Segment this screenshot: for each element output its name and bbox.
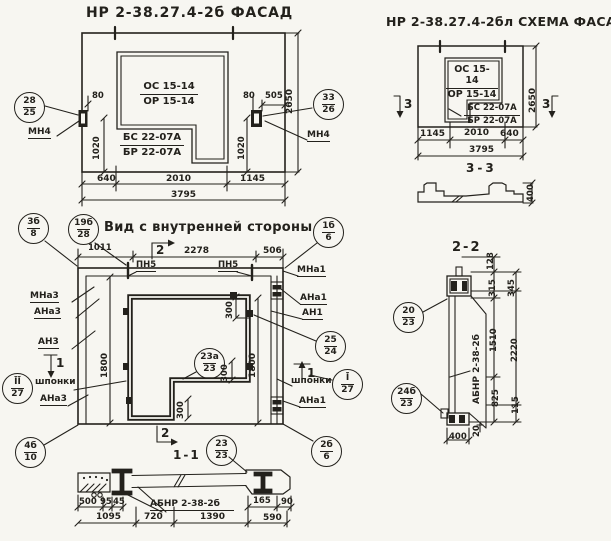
callout-4b-10: 4б 10 <box>15 437 46 468</box>
callout-33-26: 33 26 <box>313 89 344 120</box>
dim-315: 315 <box>489 279 498 297</box>
schema-opening-mark: ОС 15-14 ОР 15-14 <box>446 65 498 101</box>
callout-top-value: 19б <box>74 219 93 229</box>
callout-II-27: ĪĪ 27 <box>2 373 33 404</box>
section-marker-2-top: 2 <box>156 244 164 256</box>
label-an1: АН1 <box>302 309 323 320</box>
dim-3795-schema: 3795 <box>469 146 494 155</box>
inner-view-title: Вид с внутренней стороны <box>104 221 312 234</box>
dim-1800-right: 1800 <box>249 353 258 378</box>
dim-1800-left: 1800 <box>101 353 110 378</box>
dim-500: 500 <box>79 498 97 507</box>
callout-top-value: 20 <box>402 307 415 317</box>
callout-25-24: 25 24 <box>315 331 346 362</box>
callout-bottom-value: 26 <box>322 104 335 116</box>
callout-bottom-value: 27 <box>341 384 354 396</box>
dim-300-bottom: 300 <box>177 401 186 419</box>
callout-23-23: 23 23 <box>206 435 237 466</box>
dim-1510: 1510 <box>490 328 499 352</box>
dim-1020-left: 1020 <box>93 136 102 160</box>
drawing-sheet: НР 2-38.27.4-2б ФАСАД ОС 15-14 ОР 15-14 … <box>0 0 611 541</box>
dim-3795: 3795 <box>171 191 196 200</box>
section-2-2-title: 2-2 <box>452 241 482 254</box>
label-mna1: МНа1 <box>297 266 326 277</box>
anchor-label-mn4-right: МН4 <box>307 131 330 142</box>
dim-45: 45 <box>113 498 125 507</box>
callout-3b-8: 3б 8 <box>18 213 49 244</box>
callout-top-value: 25 <box>324 336 337 346</box>
section-2-2-linework <box>421 254 521 444</box>
dim-505: 505 <box>265 92 283 101</box>
callout-top-value: 23а <box>200 353 219 363</box>
label-an3: АН3 <box>38 338 59 349</box>
dim-1095: 1095 <box>96 513 121 522</box>
callout-bottom-value: 6 <box>322 232 335 244</box>
dim-1020-right: 1020 <box>238 136 247 160</box>
dim-115: 115 <box>512 396 521 414</box>
section-3-3-title: 3-3 <box>466 162 497 174</box>
dim-640-schema: 640 <box>500 130 519 139</box>
callout-top-value: 4б <box>24 442 37 452</box>
callout-bottom-value: 27 <box>11 388 24 400</box>
facade-opening-bottom-label: ОР 15-14 <box>135 95 203 108</box>
label-shponki-right: шпонки <box>291 377 332 386</box>
callout-28-25: 28 25 <box>14 92 45 123</box>
callout-2b-6: 2б 6 <box>311 436 342 467</box>
dim-1011: 1011 <box>88 244 112 253</box>
label-ana1: АНа1 <box>300 294 327 305</box>
callout-bottom-value: 23 <box>203 363 216 375</box>
section-marker-1-left: 1 <box>56 357 64 369</box>
dim-506: 506 <box>263 247 282 256</box>
schema-sill-mark: БС 22-07А БР 22-07А <box>461 104 523 127</box>
section-1-1-title: 1-1 <box>173 449 201 461</box>
callout-20-23: 20 23 <box>393 302 424 333</box>
dim-95: 95 <box>100 498 112 507</box>
label-ana3: АНа3 <box>34 308 61 319</box>
facade-sill-mark: БС 22-07А БР 22-07А <box>117 132 187 158</box>
callout-top-value: 33 <box>322 94 335 104</box>
facade-sill-top-label: БС 22-07А <box>120 132 184 146</box>
schema-opening-top-label: ОС 15-14 <box>446 65 498 89</box>
dim-2010-schema: 2010 <box>464 129 489 138</box>
callout-bottom-value: 6 <box>320 451 333 463</box>
schema-sill-bottom-label: БР 22-07А <box>461 116 523 127</box>
schema-sill-top-label: БС 22-07А <box>464 104 519 116</box>
dim-1145-schema: 1145 <box>420 130 445 139</box>
label-abnr-2-2: АБНР 2-38-2б <box>473 334 482 404</box>
dim-2650-facade: 2650 <box>286 89 295 114</box>
label-mna3: МНа3 <box>30 292 59 303</box>
dim-720: 720 <box>144 513 163 522</box>
dim-2220: 2220 <box>511 338 520 362</box>
dim-1145: 1145 <box>240 175 265 184</box>
callout-bottom-value: 23 <box>215 450 228 462</box>
callout-19b-28: 19б 28 <box>68 214 99 245</box>
callout-top-value: ĪĪ <box>14 378 21 388</box>
callout-bottom-value: 10 <box>24 452 37 464</box>
callout-bottom-value: 23 <box>402 317 415 329</box>
callout-top-value: 1б <box>322 222 335 232</box>
callout-top-value: 24б <box>397 388 416 398</box>
facade-opening-mark: ОС 15-14 ОР 15-14 <box>135 81 203 107</box>
facade-title: НР 2-38.27.4-2б ФАСАД <box>86 6 293 20</box>
callout-I-27: Ī 27 <box>332 369 363 400</box>
callout-top-value: 3б <box>27 218 40 228</box>
dim-345: 345 <box>508 279 517 297</box>
anchor-label-mn4-left: МН4 <box>28 128 51 139</box>
section-marker-3-left: 3 <box>404 98 412 110</box>
callout-top-value: 2б <box>320 441 333 451</box>
dim-300-mid: 300 <box>221 364 230 382</box>
section-marker-2-bottom: 2 <box>161 427 169 439</box>
dim-400-sec22: 400 <box>449 433 467 442</box>
facade-opening-top-label: ОС 15-14 <box>140 81 197 95</box>
inner-view-linework <box>44 240 332 473</box>
dim-2278: 2278 <box>184 247 209 256</box>
callout-bottom-value: 25 <box>23 107 36 119</box>
label-shponki-left: шпонки <box>35 378 76 387</box>
label-pn5-right: ПН5 <box>218 261 238 272</box>
label-ana1-bottom: АНа1 <box>299 397 326 408</box>
callout-bottom-value: 8 <box>27 228 40 240</box>
label-ana3-bottom: АНа3 <box>40 395 67 406</box>
dim-825: 825 <box>492 389 501 407</box>
facade-sill-bottom-label: БР 22-07А <box>117 146 187 159</box>
section-marker-3-right: 3 <box>542 98 550 110</box>
callout-24b-23: 24б 23 <box>391 383 422 414</box>
schema-title: НР 2-38.27.4-2бл СХЕМА ФАСАДА <box>386 16 611 29</box>
callout-top-value: 23 <box>215 440 228 450</box>
callout-1b-6: 1б 6 <box>313 217 344 248</box>
dim-400-schema: 400 <box>527 184 536 202</box>
dim-165: 165 <box>253 497 271 506</box>
callout-bottom-value: 24 <box>324 346 337 358</box>
callout-bottom-value: 28 <box>77 229 90 241</box>
callout-top-value: Ī <box>346 374 349 384</box>
dim-2650-schema: 2650 <box>529 88 538 113</box>
dim-20: 20 <box>473 425 482 437</box>
dim-80-left: 80 <box>92 92 104 101</box>
dim-640: 640 <box>97 175 116 184</box>
label-abnr-1-1: АБНР 2-38-2б <box>150 500 234 511</box>
dim-300-top: 300 <box>226 301 235 319</box>
label-pn5-left: ПН5 <box>136 261 156 272</box>
dim-90: 90 <box>281 498 293 507</box>
dim-2010: 2010 <box>166 175 191 184</box>
callout-top-value: 28 <box>23 97 36 107</box>
dim-1390: 1390 <box>200 513 225 522</box>
dim-590: 590 <box>263 514 282 523</box>
callout-bottom-value: 23 <box>400 398 413 410</box>
schema-opening-bottom-label: ОР 15-14 <box>446 89 498 101</box>
dim-80-right: 80 <box>243 92 255 101</box>
dim-128: 128 <box>487 252 496 270</box>
